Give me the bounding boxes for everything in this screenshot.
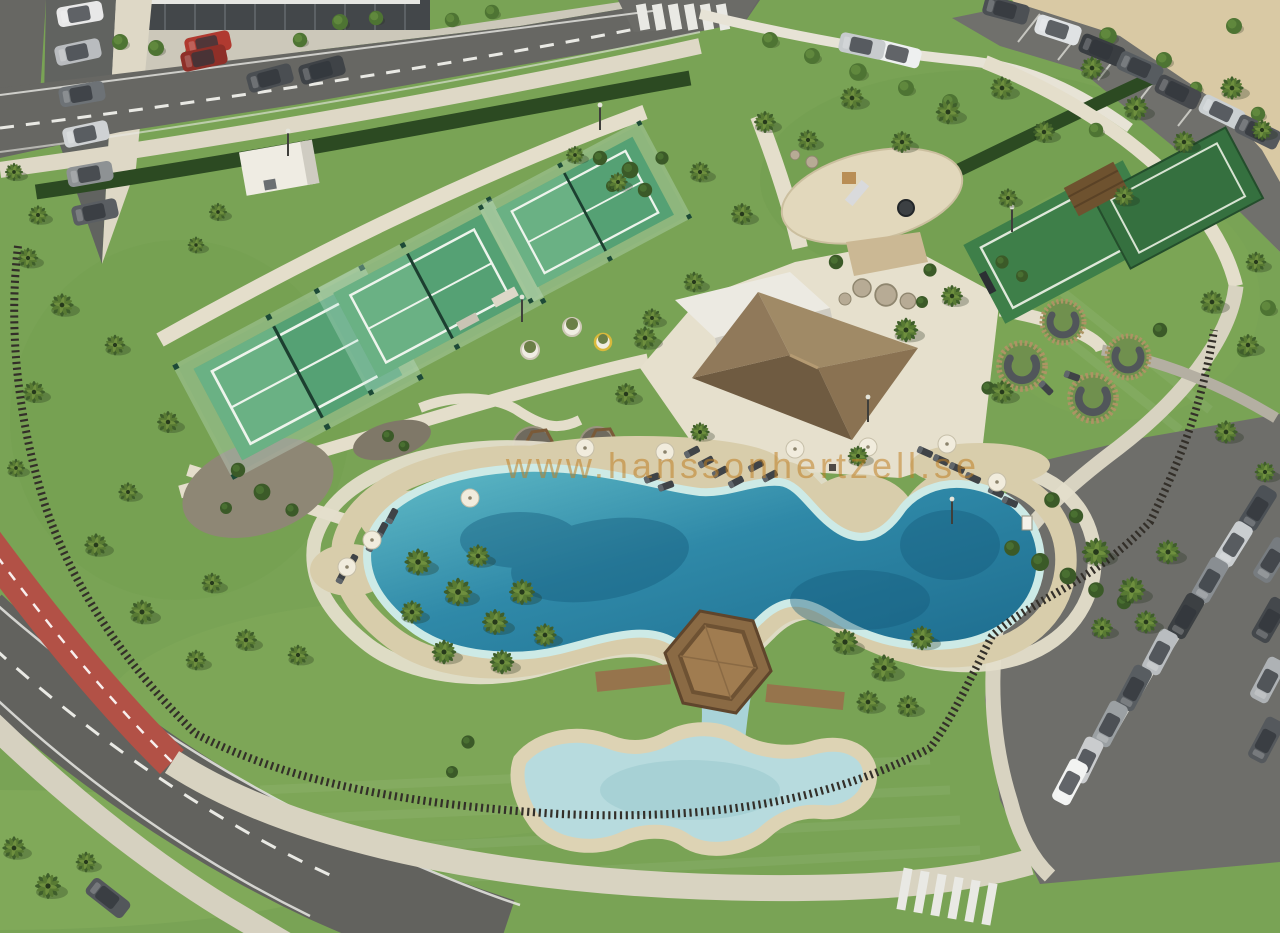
bush	[829, 255, 843, 269]
aerial-photo: www.hanssonhertzell.se	[0, 0, 1280, 933]
rock	[900, 293, 916, 309]
bush	[1044, 492, 1060, 508]
bush	[1004, 540, 1020, 556]
rock	[853, 279, 871, 297]
pod	[1107, 336, 1149, 378]
bush	[1153, 323, 1167, 337]
bush	[655, 151, 668, 164]
umbrella	[988, 473, 1006, 491]
bush	[399, 441, 410, 452]
bush	[220, 502, 232, 514]
scene-svg: www.hanssonhertzell.se	[0, 0, 1280, 933]
umbrella	[461, 489, 479, 507]
bush	[461, 735, 474, 748]
bush	[1016, 270, 1028, 282]
bush	[446, 766, 458, 778]
bush	[593, 151, 607, 165]
bush	[916, 296, 928, 308]
bush	[285, 503, 298, 516]
pool-sign	[1022, 516, 1032, 530]
bush	[1060, 568, 1077, 585]
bush	[254, 484, 271, 501]
umbrella	[363, 531, 381, 549]
bush	[923, 263, 936, 276]
bush	[382, 430, 394, 442]
rock	[839, 293, 851, 305]
rock	[790, 150, 800, 160]
watermark-text: www.hanssonhertzell.se	[505, 445, 980, 486]
rock	[875, 284, 897, 306]
play-tower	[842, 172, 856, 184]
pod	[1070, 375, 1116, 421]
bush	[231, 463, 245, 477]
umbrella	[338, 558, 356, 576]
spinner	[898, 200, 914, 216]
rock	[806, 156, 818, 168]
pod	[1042, 301, 1084, 343]
bush	[995, 255, 1008, 268]
bush	[1069, 509, 1083, 523]
bush	[1088, 582, 1104, 598]
bush	[638, 183, 652, 197]
bush	[1031, 553, 1049, 571]
